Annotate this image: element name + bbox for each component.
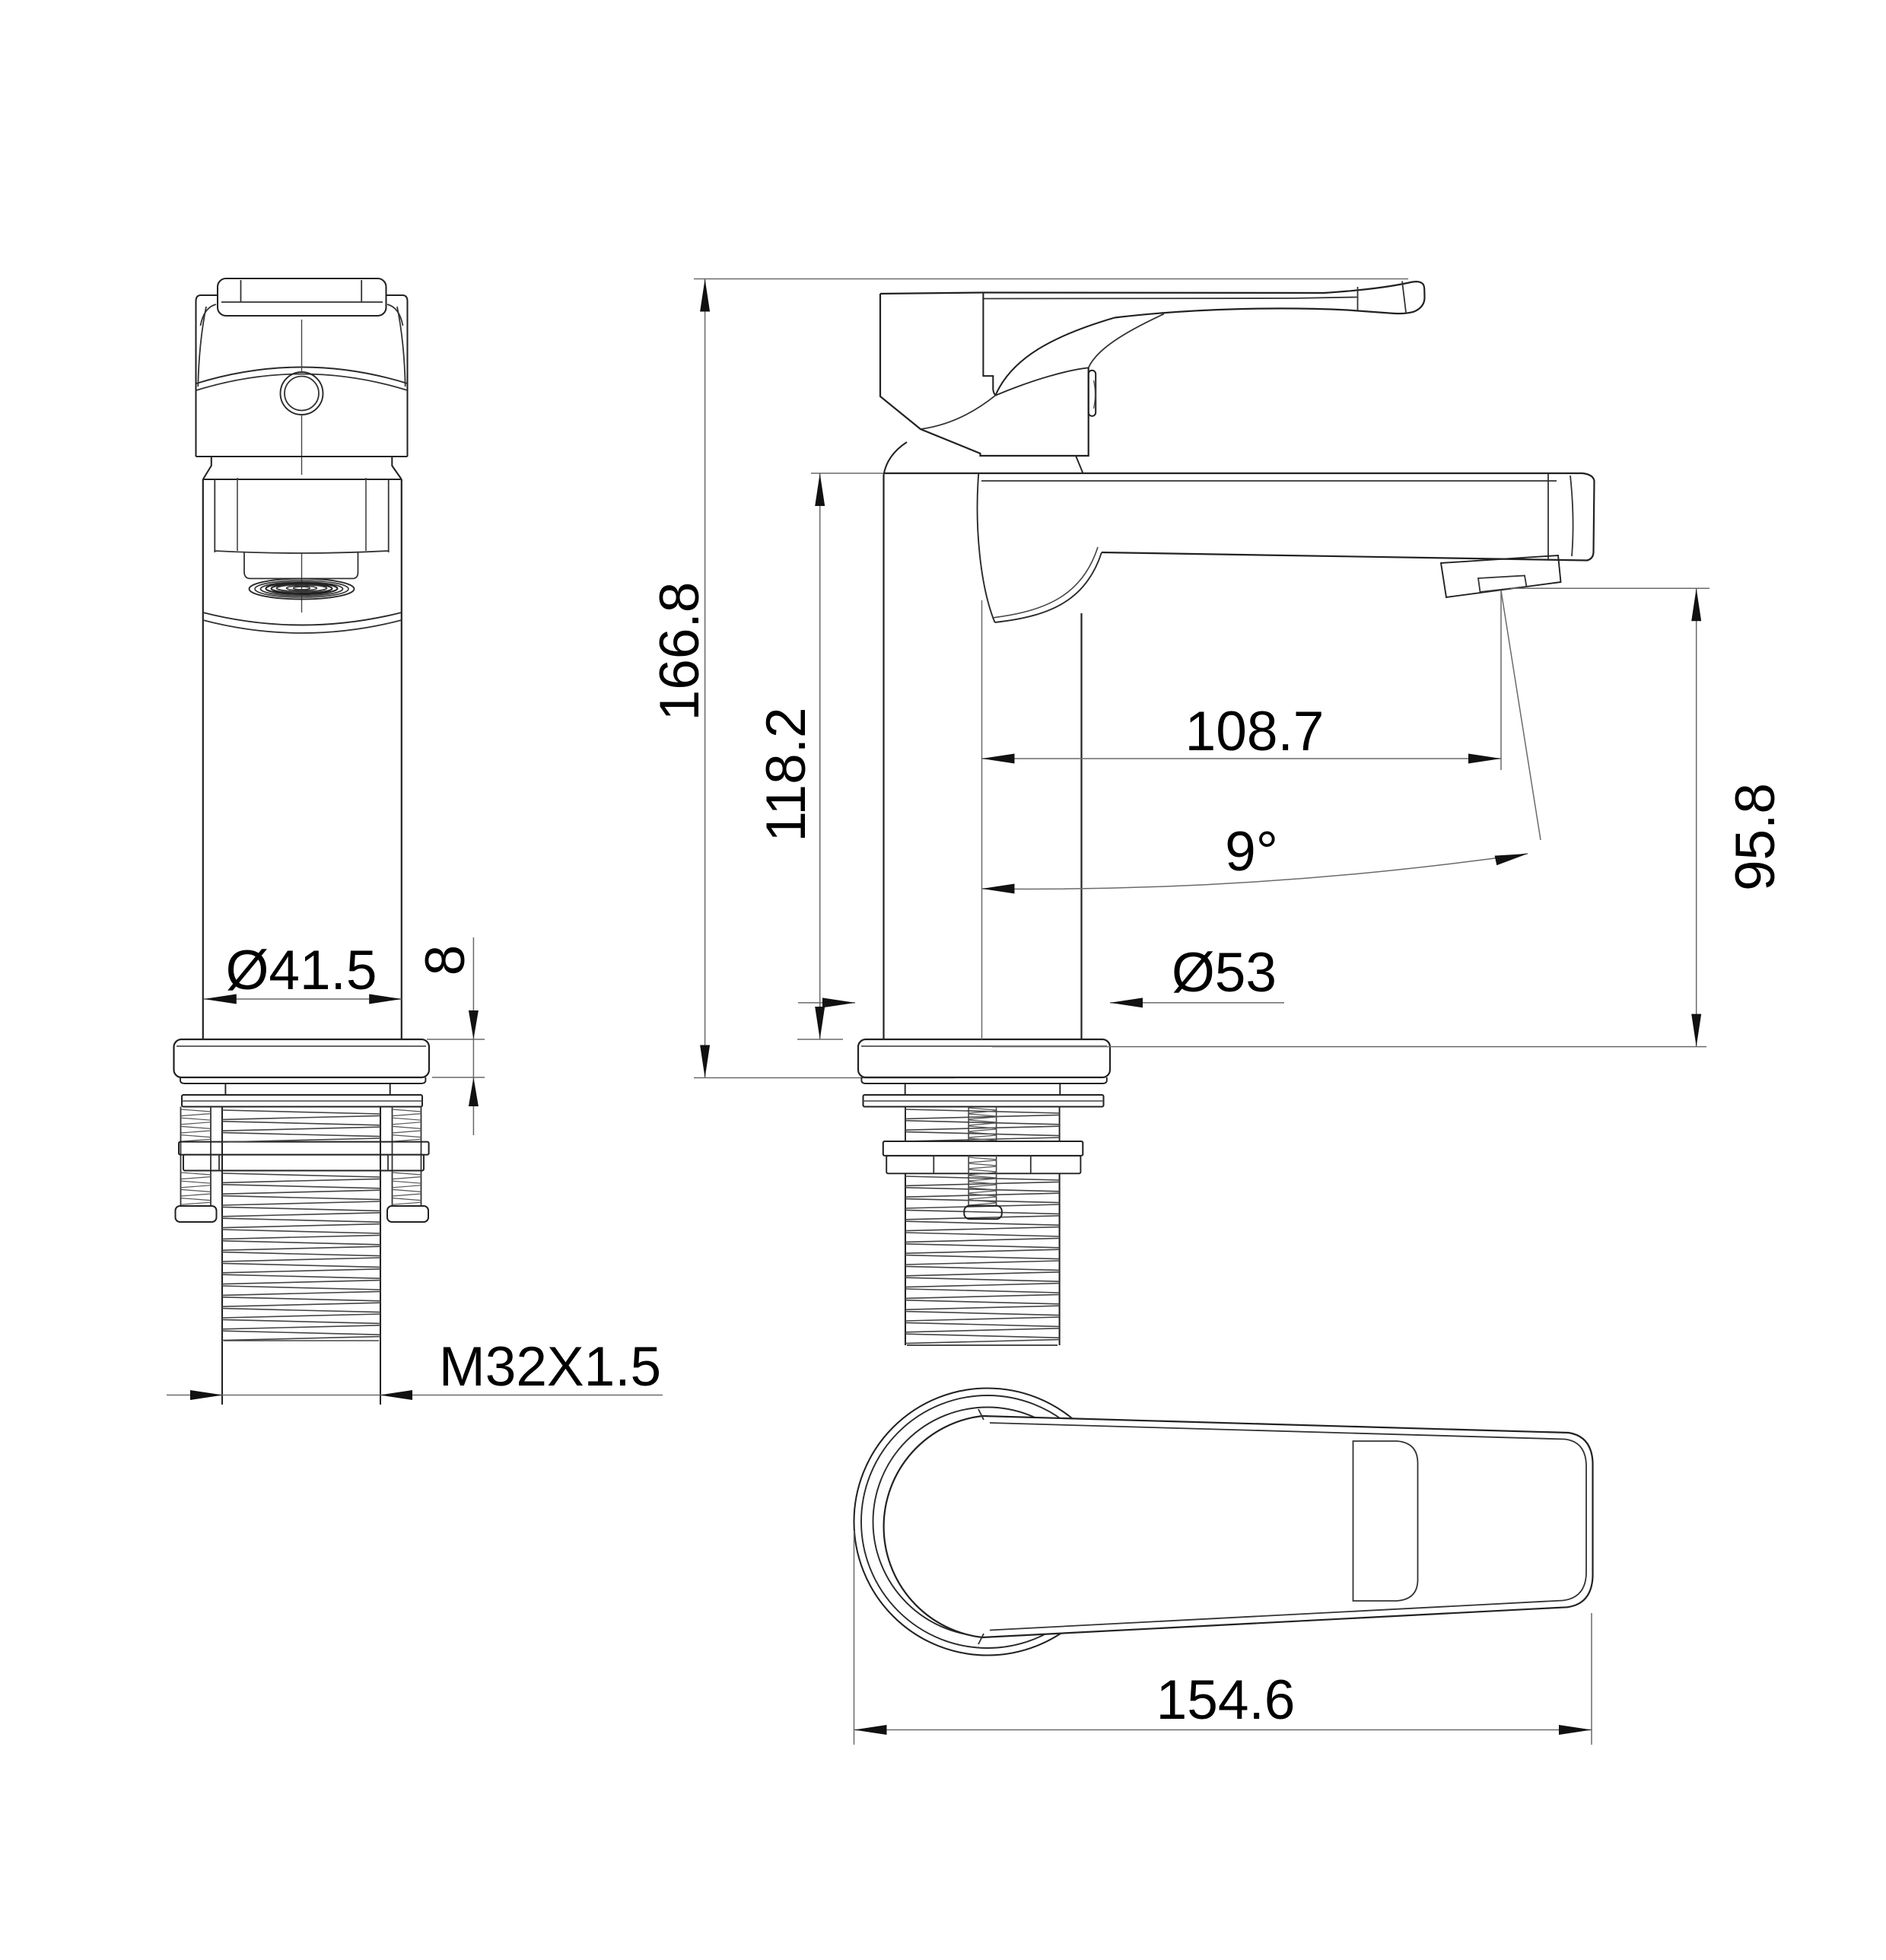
svg-text:95.8: 95.8 bbox=[1725, 783, 1786, 891]
svg-text:M32X1.5: M32X1.5 bbox=[439, 1336, 661, 1398]
svg-text:108.7: 108.7 bbox=[1185, 701, 1325, 762]
svg-text:118.2: 118.2 bbox=[755, 707, 817, 842]
svg-text:154.6: 154.6 bbox=[1156, 1669, 1296, 1731]
svg-text:166.8: 166.8 bbox=[649, 582, 711, 721]
svg-text:8: 8 bbox=[415, 945, 476, 976]
svg-text:9°: 9° bbox=[1225, 821, 1278, 883]
svg-text:Ø53: Ø53 bbox=[1172, 942, 1277, 1004]
svg-text:Ø41.5: Ø41.5 bbox=[226, 940, 377, 1001]
